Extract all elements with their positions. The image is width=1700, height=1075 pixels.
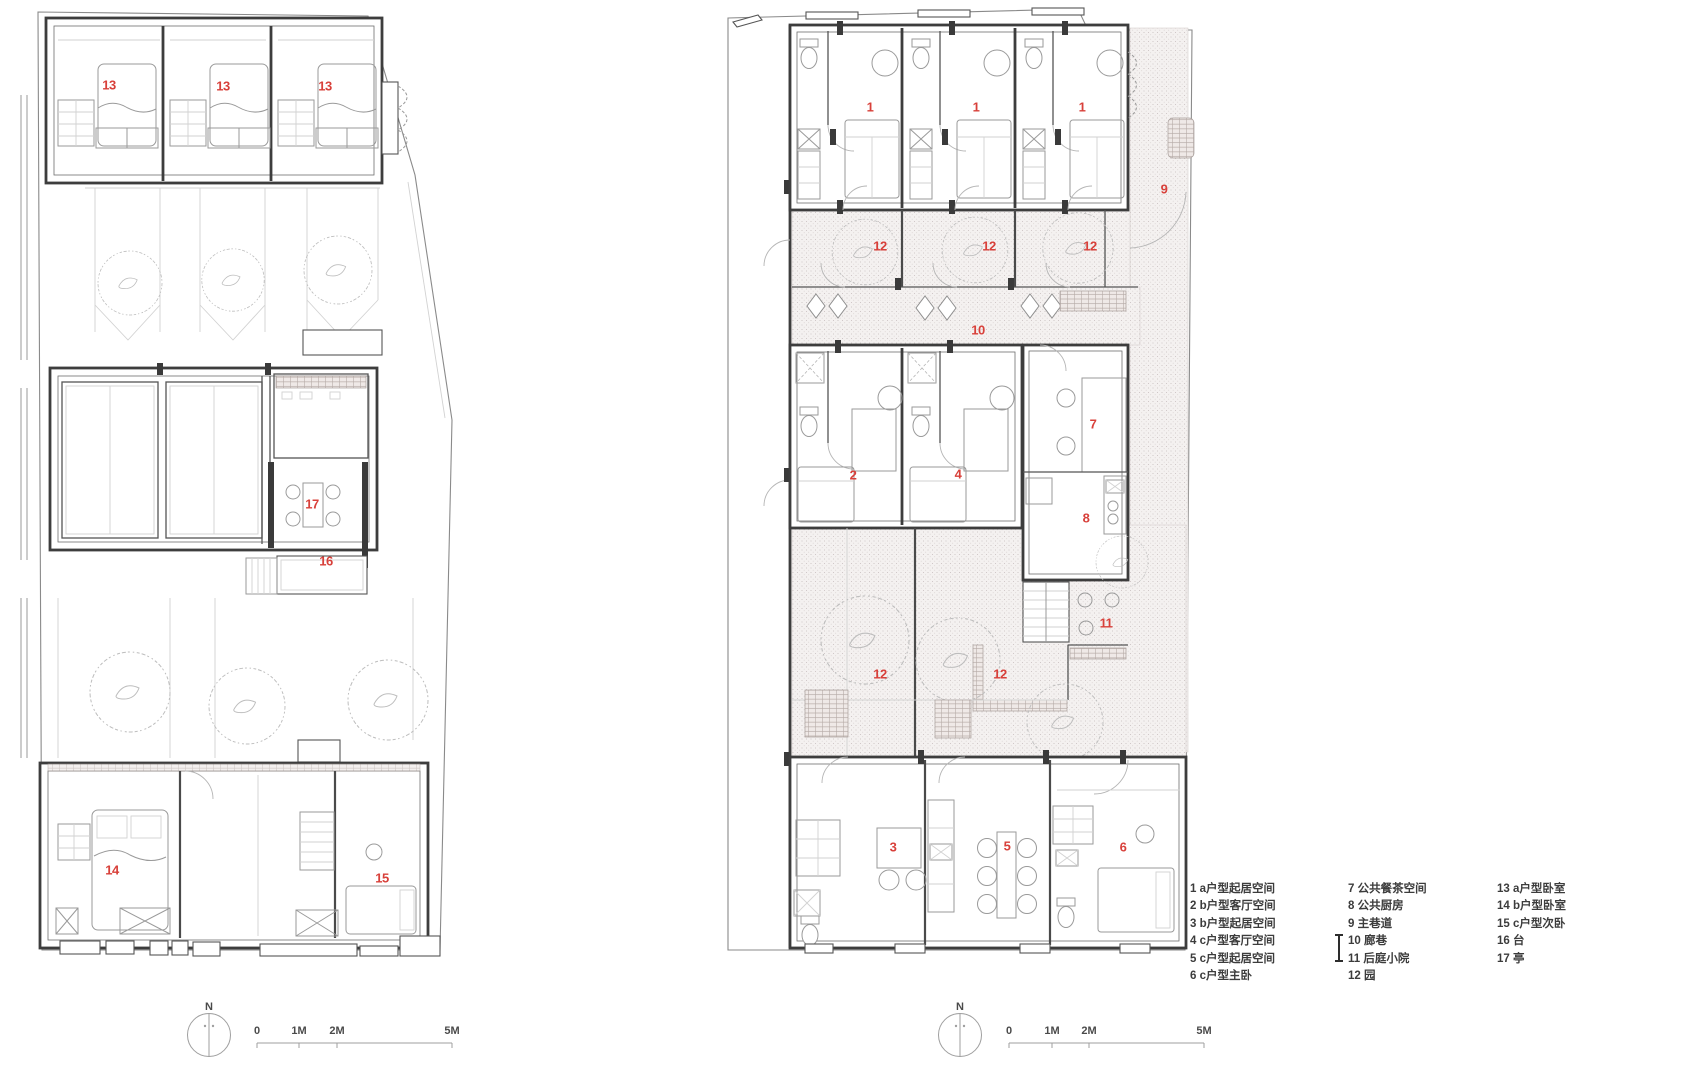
legend-item: 8 公共厨房 <box>1348 898 1427 915</box>
units-block-top <box>790 21 1128 214</box>
room-number-label: 12 <box>1083 238 1097 253</box>
room-number-label: 11 <box>1100 615 1113 630</box>
legend-column-units: 1 a户型起居空间2 b户型客厅空间3 b户型起居空间4 c户型客厅空间5 c户… <box>1190 881 1276 985</box>
annotation-label: 5M <box>444 1025 459 1037</box>
room-number-label: 12 <box>873 238 887 253</box>
legend-column-bedrooms: 13 a户型卧室14 b户型卧室15 c户型次卧16 台17 亭 <box>1497 881 1566 968</box>
room-number-label: 5 <box>1004 838 1011 853</box>
annotation-label: 1M <box>291 1025 306 1037</box>
room-number-label: 13 <box>318 78 332 93</box>
annotation-label: 0 <box>1006 1025 1012 1037</box>
text-cursor-artifact <box>1337 934 1341 962</box>
legend-item: 16 台 <box>1497 933 1566 950</box>
room-number-label: 12 <box>993 666 1007 681</box>
legend-item: 6 c户型主卧 <box>1190 968 1276 985</box>
legend-item: 2 b户型客厅空间 <box>1190 898 1276 915</box>
tree-icon <box>209 668 285 744</box>
tree-icon <box>98 251 162 315</box>
legend-item: 4 c户型客厅空间 <box>1190 933 1276 950</box>
room-number-label: 16 <box>319 553 333 568</box>
room-number-label: 13 <box>102 77 116 92</box>
legend: 1 a户型起居空间2 b户型客厅空间3 b户型起居空间4 c户型客厅空间5 c户… <box>1190 881 1660 1001</box>
scale-bar-right <box>1009 1043 1204 1048</box>
left-plan-annotations: N01M2M5M <box>205 1001 460 1037</box>
legend-item: 15 c户型次卧 <box>1497 916 1566 933</box>
toilet-icon <box>801 916 819 946</box>
bedroom-block-bottom <box>40 763 428 948</box>
tree-icon <box>304 236 372 304</box>
room-number-label: 9 <box>1161 181 1168 196</box>
annotation-label: 2M <box>1081 1025 1096 1037</box>
room-number-label: 17 <box>305 496 319 511</box>
stepping-pad <box>805 690 848 737</box>
bedroom-block-top <box>46 18 407 183</box>
room-number-label: 12 <box>873 666 887 681</box>
tree-icon <box>348 660 428 740</box>
legend-item: 17 亭 <box>1497 951 1566 968</box>
room-number-label: 1 <box>1079 99 1086 114</box>
room-number-label: 13 <box>216 78 230 93</box>
right-plan-annotations: N01M2M5M <box>956 1001 1212 1037</box>
room-number-label: 15 <box>375 870 389 885</box>
north-arrow-left <box>188 1014 231 1057</box>
legend-item: 5 c户型起居空间 <box>1190 951 1276 968</box>
tree-icon <box>202 249 264 311</box>
terrace-16 <box>246 556 367 594</box>
legend-column-common: 7 公共餐茶空间8 公共厨房9 主巷道10 廊巷11 后庭小院12 园 <box>1348 881 1427 985</box>
bottom-block <box>790 750 1186 953</box>
room-number-label: 12 <box>982 238 996 253</box>
balcony <box>382 82 398 154</box>
room-number-label: 7 <box>1090 416 1097 431</box>
legend-item: 1 a户型起居空间 <box>1190 881 1276 898</box>
annotation-label: 1M <box>1044 1025 1059 1037</box>
paved-landing <box>1060 291 1126 311</box>
room-number-label: 1 <box>973 99 980 114</box>
legend-item: 13 a户型卧室 <box>1497 881 1566 898</box>
middle-block <box>50 363 377 568</box>
room-number-label: 3 <box>890 839 897 854</box>
floor-plan-sheet: 13131317161415 N01M2M5M 1119121212102478… <box>0 0 1700 1075</box>
annotation-label: N <box>956 1001 964 1013</box>
room-number-label: 2 <box>850 467 857 482</box>
room-number-label: 6 <box>1120 839 1127 854</box>
legend-item: 7 公共餐茶空间 <box>1348 881 1427 898</box>
scale-bar-left <box>257 1043 452 1048</box>
site-fence <box>17 95 29 758</box>
annotation-label: 0 <box>254 1025 260 1037</box>
tree-icon <box>90 652 170 732</box>
annotation-label: N <box>205 1001 213 1013</box>
legend-item: 14 b户型卧室 <box>1497 898 1566 915</box>
room-number-label: 14 <box>105 862 120 877</box>
room-number-label: 10 <box>971 322 985 337</box>
legend-item: 12 园 <box>1348 968 1427 985</box>
toilet-icon <box>1057 898 1075 928</box>
stair <box>1023 582 1069 642</box>
north-arrow-right <box>939 1014 982 1057</box>
living-rooms-block <box>790 340 1022 528</box>
annotation-label: 5M <box>1196 1025 1211 1037</box>
garden-band-lower <box>58 598 428 762</box>
annotation-label: 2M <box>329 1025 344 1037</box>
legend-item: 3 b户型起居空间 <box>1190 916 1276 933</box>
stepping-pad <box>935 700 971 738</box>
legend-item: 9 主巷道 <box>1348 916 1427 933</box>
legend-item: 11 后庭小院 <box>1348 951 1427 968</box>
planter <box>1168 118 1194 158</box>
courtyard-band-upper <box>85 188 382 355</box>
room-number-label: 1 <box>867 99 874 114</box>
left-floor-plan <box>17 12 452 956</box>
legend-item: 10 廊巷 <box>1348 933 1427 950</box>
room-number-label: 8 <box>1083 510 1090 525</box>
